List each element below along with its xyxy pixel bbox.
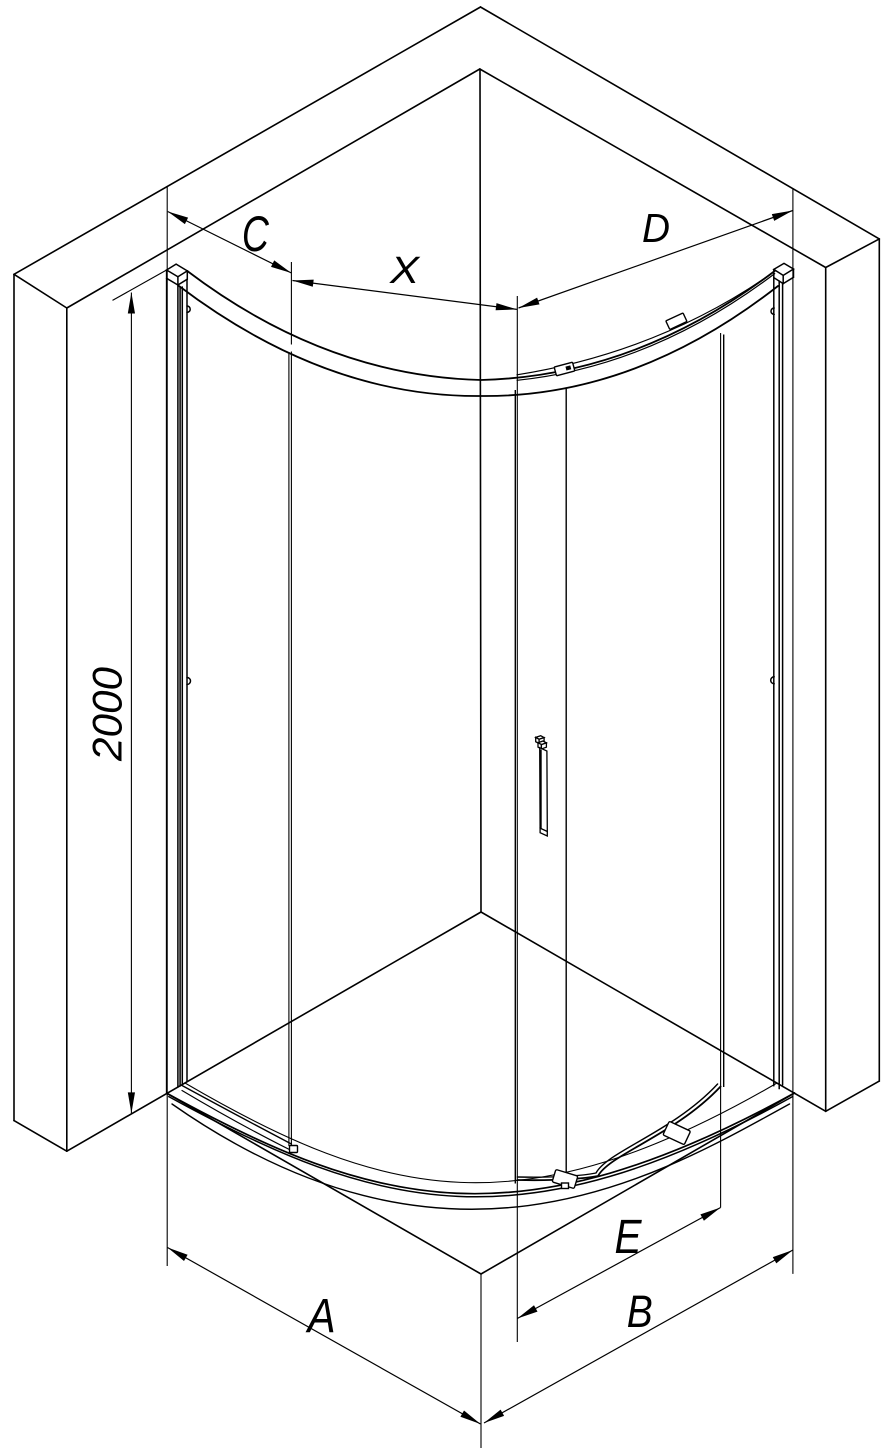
svg-text:E: E bbox=[615, 1211, 643, 1264]
svg-text:B: B bbox=[627, 1286, 653, 1337]
svg-text:2000: 2000 bbox=[84, 666, 131, 762]
svg-text:A: A bbox=[305, 1290, 336, 1343]
svg-text:X: X bbox=[389, 250, 421, 292]
svg-text:C: C bbox=[242, 206, 270, 262]
svg-text:D: D bbox=[642, 205, 670, 251]
